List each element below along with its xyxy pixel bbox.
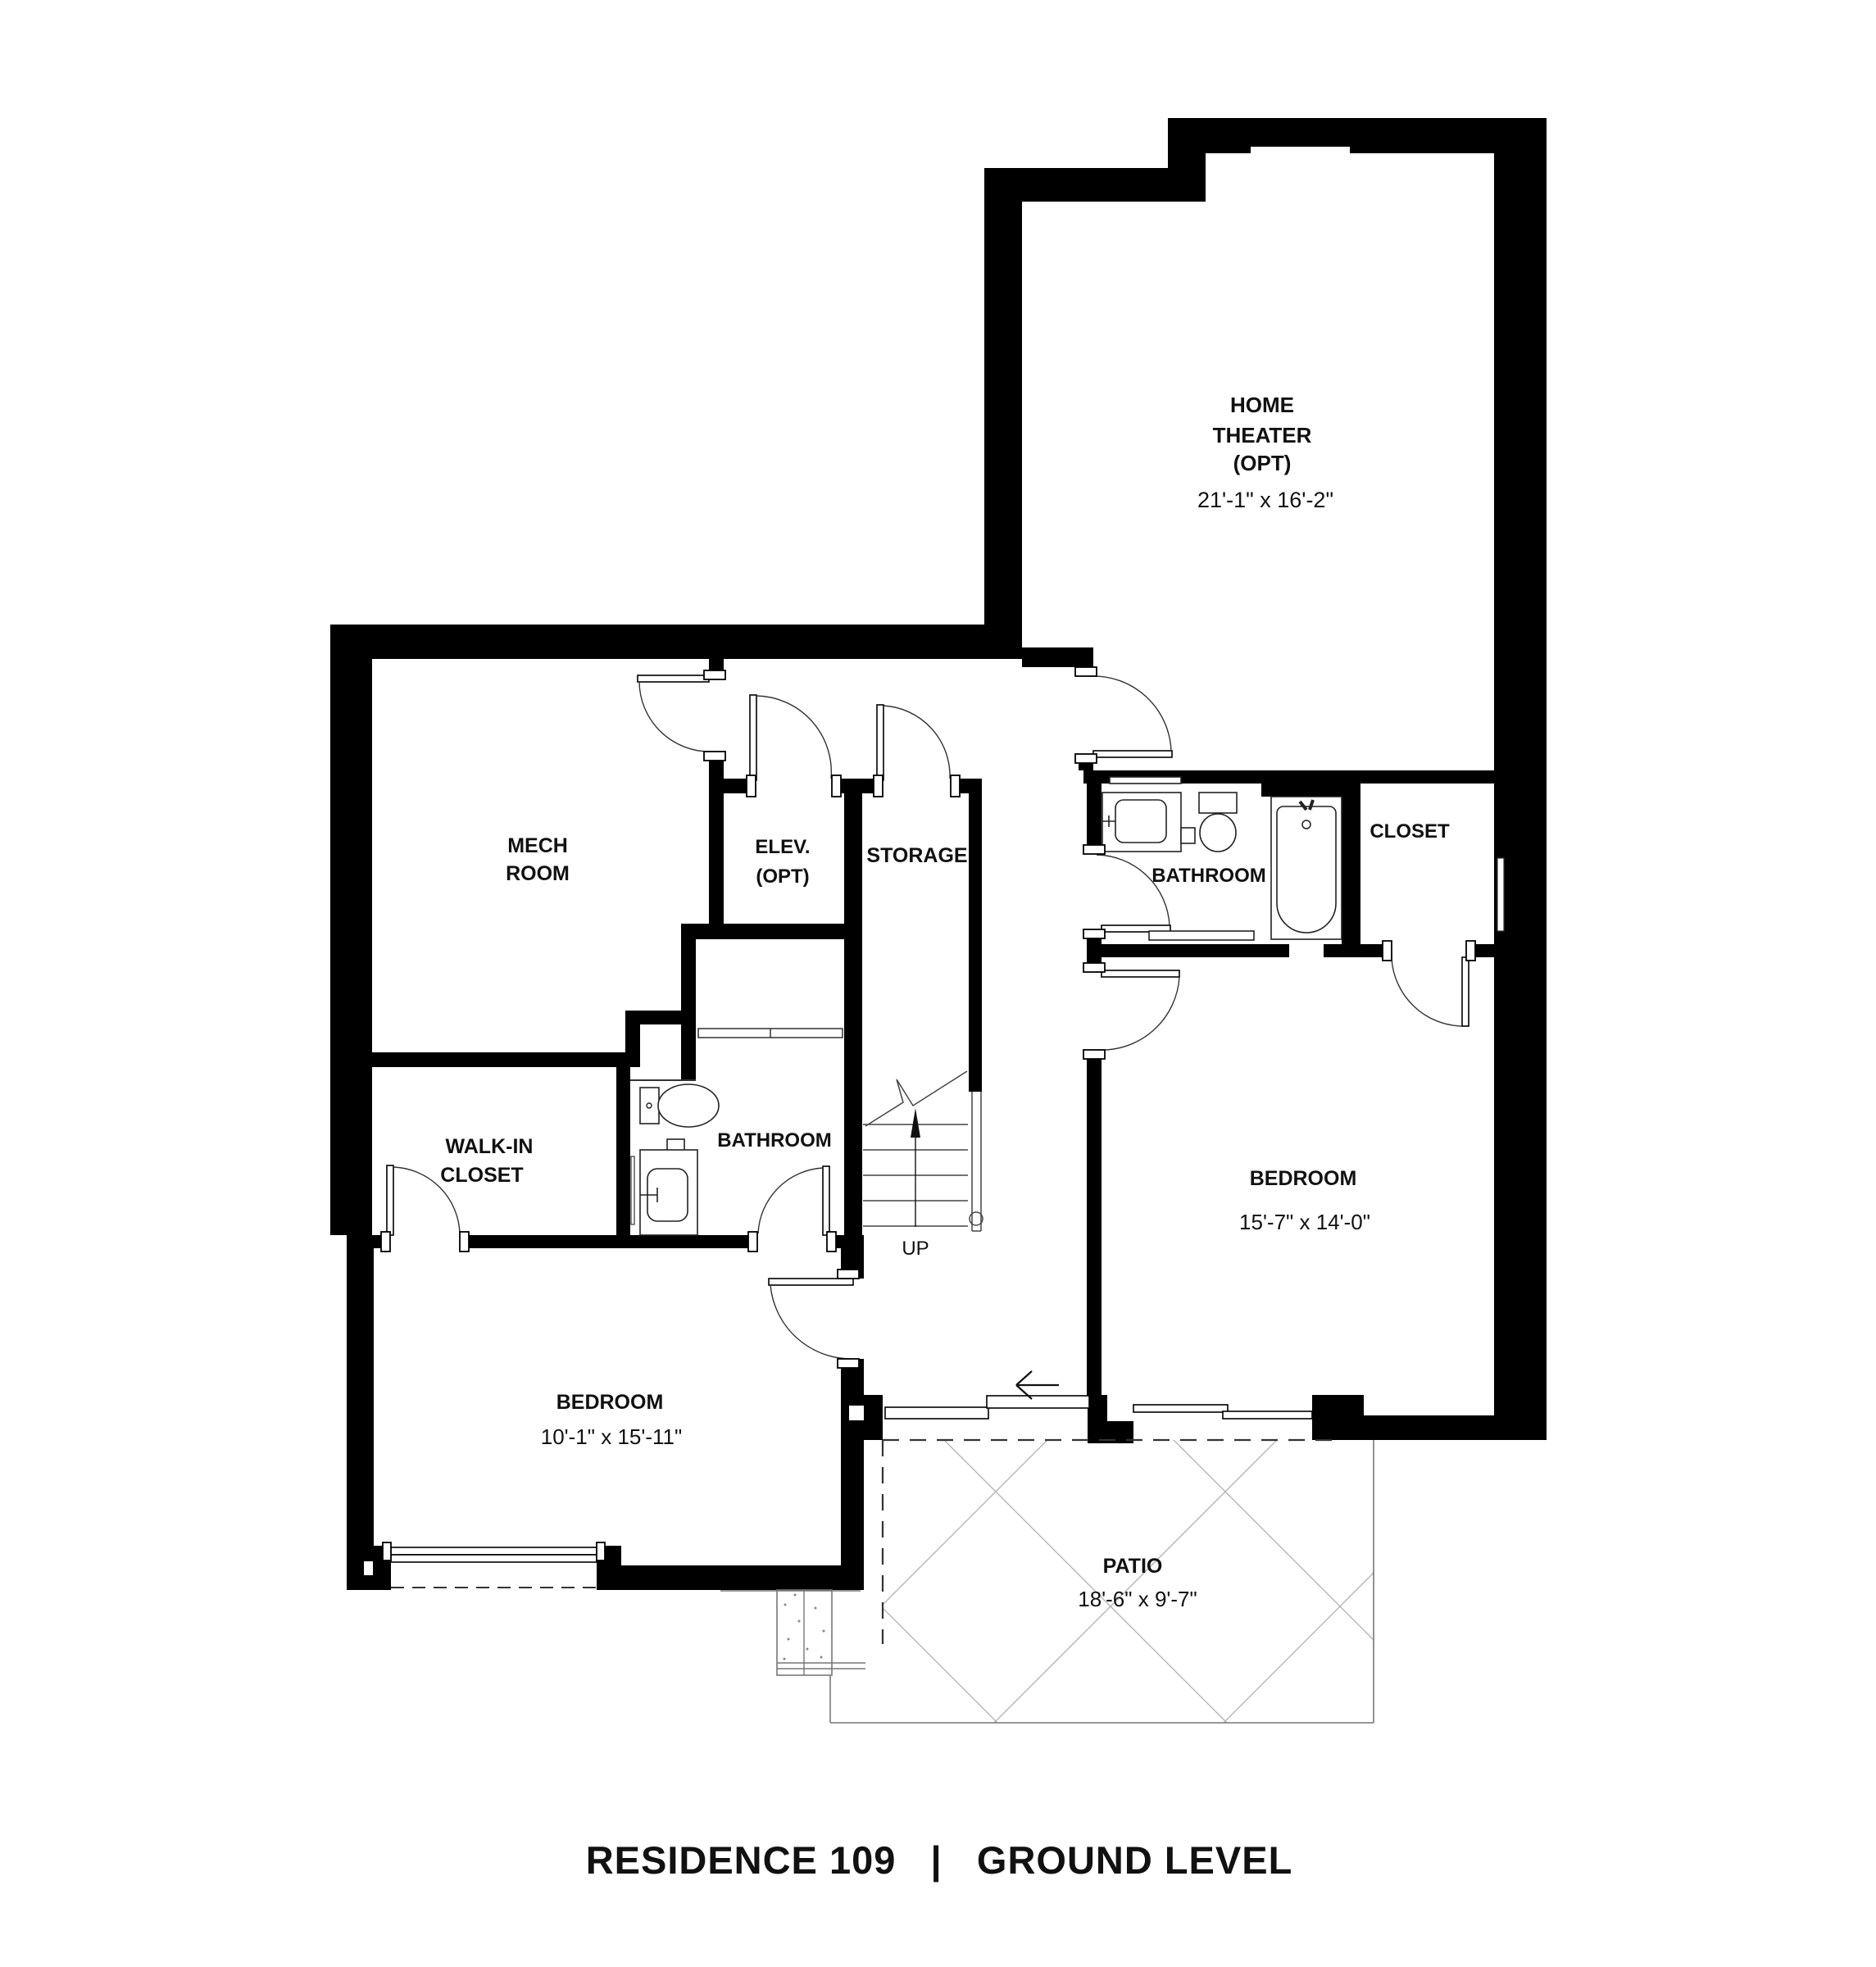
svg-text:ROOM: ROOM: [506, 862, 570, 885]
svg-text:STORAGE: STORAGE: [866, 844, 967, 867]
svg-text:PATIO: PATIO: [1103, 1555, 1163, 1578]
svg-text:CLOSET: CLOSET: [1370, 820, 1450, 843]
svg-text:MECH: MECH: [507, 834, 568, 857]
svg-text:BEDROOM: BEDROOM: [556, 1391, 664, 1414]
svg-text:15'-7" x 14'-0": 15'-7" x 14'-0": [1239, 1210, 1370, 1234]
svg-text:HOME: HOME: [1230, 393, 1294, 417]
svg-text:BATHROOM: BATHROOM: [1151, 865, 1266, 887]
svg-text:21'-1" x 16'-2": 21'-1" x 16'-2": [1197, 488, 1333, 512]
svg-text:UP: UP: [902, 1238, 929, 1260]
svg-text:(OPT): (OPT): [1233, 451, 1292, 475]
svg-text:(OPT): (OPT): [756, 865, 809, 888]
svg-text:CLOSET: CLOSET: [440, 1164, 523, 1187]
svg-text:WALK-IN: WALK-IN: [446, 1135, 534, 1158]
svg-text:10'-1" x 15'-11": 10'-1" x 15'-11": [541, 1424, 682, 1449]
svg-text:THEATER: THEATER: [1213, 423, 1312, 447]
svg-text:18'-6" x 9'-7": 18'-6" x 9'-7": [1078, 1587, 1197, 1611]
svg-text:RESIDENCE 109 | GROUND LEV: RESIDENCE 109 | GROUND LEVEL: [586, 1838, 1293, 1882]
svg-text:BATHROOM: BATHROOM: [717, 1129, 832, 1152]
svg-text:BEDROOM: BEDROOM: [1250, 1167, 1357, 1190]
svg-text:ELEV.: ELEV.: [755, 836, 810, 858]
